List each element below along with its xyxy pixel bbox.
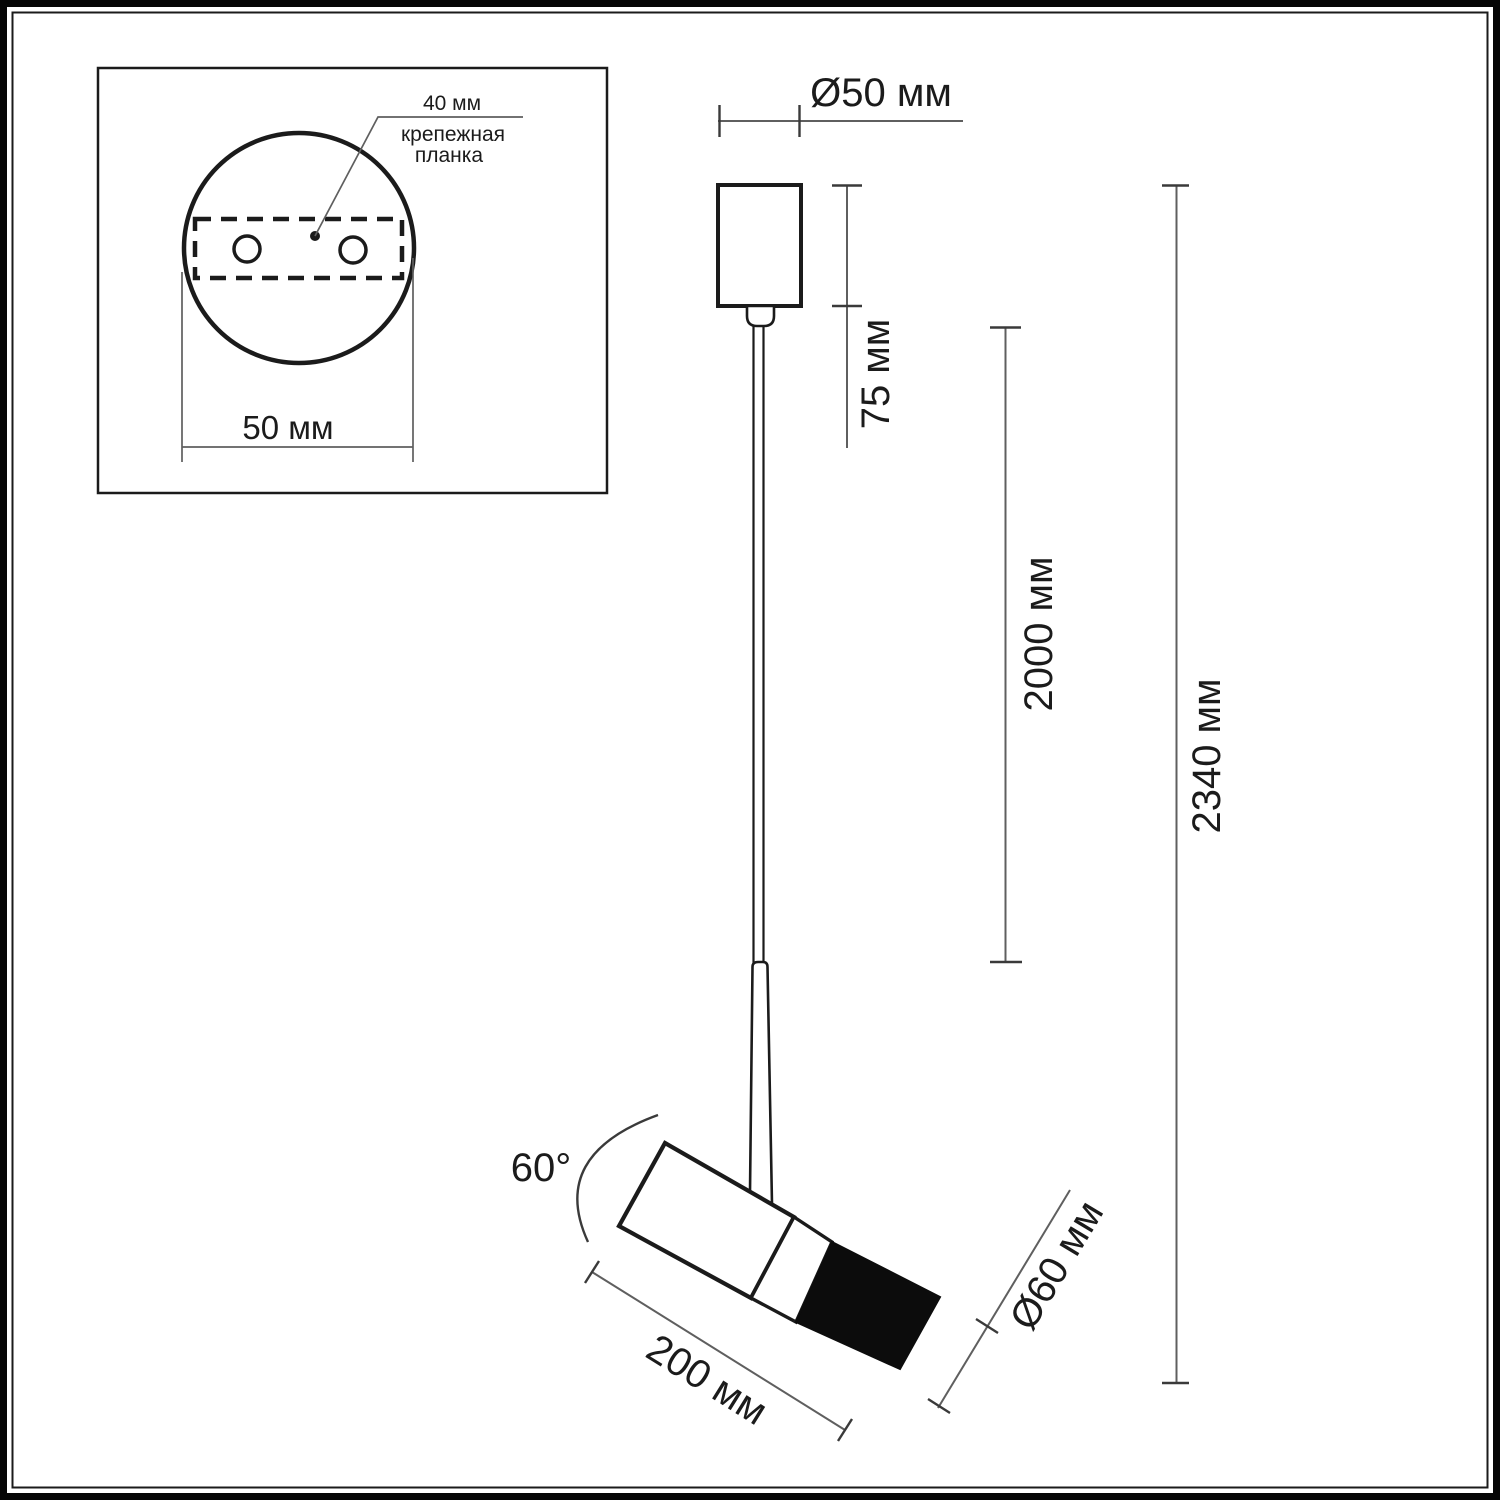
hole-spacing-label: 40 мм xyxy=(423,92,481,115)
canopy-height-label: 75 мм xyxy=(854,319,898,430)
inset-box xyxy=(98,68,607,493)
canopy-diameter-label: Ø50 мм xyxy=(810,71,952,115)
canopy-cable-grip xyxy=(747,306,774,326)
total-height-label: 2340 мм xyxy=(1185,678,1229,833)
cable-length-label: 2000 мм xyxy=(1017,556,1061,711)
mounting-plate-label-line2: планка xyxy=(415,144,484,167)
ceiling-canopy xyxy=(718,185,801,306)
stem xyxy=(750,962,772,1204)
mount-inset: 40 мм крепежная планка 50 мм xyxy=(98,68,607,493)
technical-drawing: 40 мм крепежная планка 50 мм Ø50 мм xyxy=(0,0,1500,1500)
mounting-plate-label-line1: крепежная xyxy=(401,123,505,146)
head-tilt-label: 60° xyxy=(511,1146,572,1190)
drawing-page: 40 мм крепежная планка 50 мм Ø50 мм xyxy=(0,0,1500,1500)
base-width-label: 50 мм xyxy=(242,409,333,446)
